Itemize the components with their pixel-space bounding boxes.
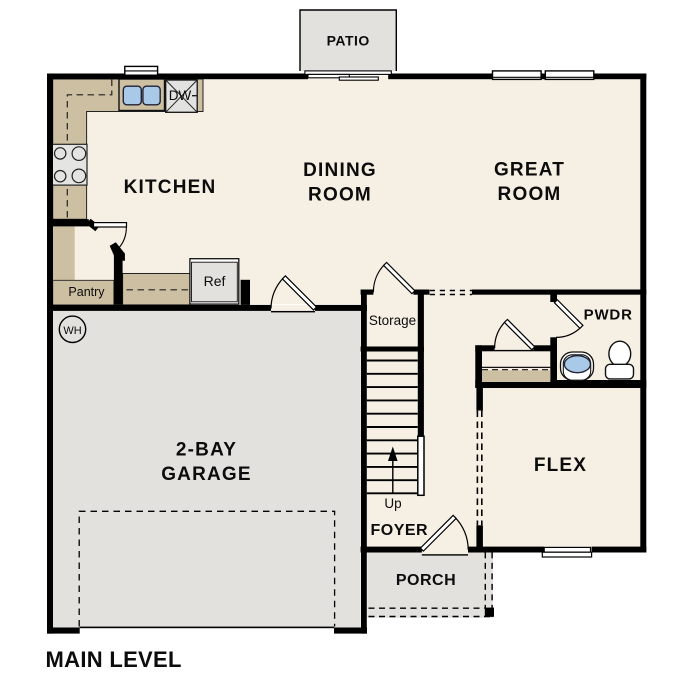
svg-text:Ref: Ref: [204, 273, 226, 289]
svg-text:PATIO: PATIO: [327, 33, 370, 49]
svg-text:Storage: Storage: [369, 313, 416, 328]
svg-text:MAIN LEVEL: MAIN LEVEL: [46, 647, 182, 672]
svg-text:DINING: DINING: [303, 160, 377, 181]
svg-text:KITCHEN: KITCHEN: [124, 177, 217, 198]
svg-text:GREAT: GREAT: [494, 160, 565, 181]
svg-text:WH: WH: [63, 325, 81, 337]
svg-text:DW: DW: [169, 88, 192, 103]
svg-text:FOYER: FOYER: [370, 522, 428, 539]
svg-text:Pantry: Pantry: [68, 285, 105, 299]
svg-text:ROOM: ROOM: [308, 184, 372, 205]
svg-text:Up: Up: [384, 496, 401, 511]
svg-text:ROOM: ROOM: [498, 184, 562, 205]
svg-text:PWDR: PWDR: [584, 307, 633, 324]
svg-text:2-BAY: 2-BAY: [176, 439, 237, 460]
svg-text:FLEX: FLEX: [534, 455, 587, 476]
svg-text:PORCH: PORCH: [396, 572, 456, 589]
svg-text:GARAGE: GARAGE: [161, 464, 252, 485]
